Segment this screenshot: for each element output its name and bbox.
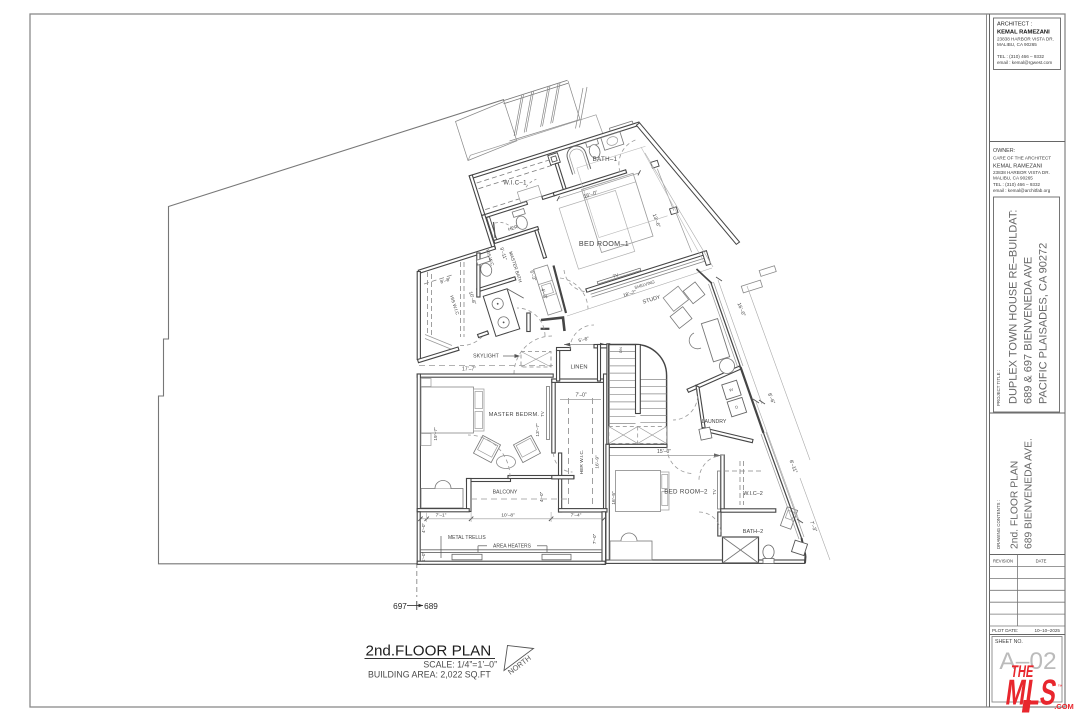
svg-text:BUILDING AREA: 2,022 SQ.FT: BUILDING AREA: 2,022 SQ.FT (368, 670, 491, 680)
svg-text:TEL : (310) 466 – 9332: TEL : (310) 466 – 9332 (997, 54, 1045, 59)
svg-text:10’–8”: 10’–8” (501, 513, 515, 519)
svg-text:.COM: .COM (1054, 702, 1074, 711)
svg-text:7’–1”: 7’–1” (436, 513, 447, 519)
svg-text:2nd. FLOOR PLAN: 2nd. FLOOR PLAN (1010, 461, 1021, 549)
svg-text:697: 697 (393, 602, 407, 611)
svg-text:4’–0”: 4’–0” (539, 491, 544, 502)
svg-text:DATE: DATE (1036, 559, 1047, 564)
svg-text:1’–0”: 1’–0” (421, 552, 426, 562)
svg-text:PROJECT TITLE :: PROJECT TITLE : (996, 370, 1001, 406)
svg-text:LAUNDRY: LAUNDRY (702, 419, 727, 425)
svg-text:MLS: MLS (1003, 672, 1059, 713)
svg-text:SHEET NO.: SHEET NO. (995, 639, 1023, 645)
svg-text:DRAWING CONTENTS :: DRAWING CONTENTS : (996, 500, 1001, 549)
svg-text:KEMAL RAMEZANI: KEMAL RAMEZANI (997, 30, 1050, 36)
svg-text:SCALE: 1/4”=1’–0”: SCALE: 1/4”=1’–0” (423, 660, 497, 670)
svg-text:W.I.C–1: W.I.C–1 (503, 181, 527, 187)
svg-text:2nd.FLOOR PLAN: 2nd.FLOOR PLAN (366, 643, 492, 660)
svg-text:MALIBU, CA 90265: MALIBU, CA 90265 (997, 42, 1037, 47)
svg-text:16’–9”: 16’–9” (595, 455, 601, 469)
svg-text:REVISION: REVISION (993, 559, 1013, 564)
svg-text:689: 689 (424, 602, 438, 611)
svg-text:PACIFIC PLAISADES, CA 90272: PACIFIC PLAISADES, CA 90272 (1038, 243, 1050, 404)
svg-text:17’–7”: 17’–7” (462, 367, 476, 373)
svg-text:AREA HEATERS: AREA HEATERS (493, 544, 532, 550)
svg-text:7’–0”: 7’–0” (575, 393, 586, 399)
svg-text:TV: TV (712, 489, 717, 495)
svg-text:BED ROOM–1: BED ROOM–1 (579, 239, 629, 248)
svg-text:TEL : (310) 466 – 9332: TEL : (310) 466 – 9332 (993, 182, 1041, 187)
svg-text:689 & 697 BIENVENEDA AVE: 689 & 697 BIENVENEDA AVE (1023, 257, 1035, 404)
svg-text:13’–7”: 13’–7” (535, 423, 541, 437)
svg-text:4’–0”: 4’–0” (421, 523, 426, 533)
svg-text:BED ROOM–2: BED ROOM–2 (664, 489, 708, 496)
svg-text:DN: DN (618, 347, 623, 353)
svg-text:HER W.I.C.: HER W.I.C. (579, 450, 585, 475)
svg-text:email : kemal@rgwest.com: email : kemal@rgwest.com (997, 60, 1052, 65)
svg-text:LINEN: LINEN (570, 365, 587, 371)
svg-text:15’–0”: 15’–0” (657, 449, 671, 455)
svg-text:CARE OF THE ARCHITECT: CARE OF THE ARCHITECT (993, 156, 1051, 161)
svg-text:METAL TRELLIS: METAL TRELLIS (448, 535, 486, 541)
svg-text:KEMAL RAMEZANI: KEMAL RAMEZANI (993, 164, 1043, 170)
svg-text:7’–4”: 7’–4” (571, 513, 582, 519)
svg-text:23838 HARBOR VISTA DR.: 23838 HARBOR VISTA DR. (993, 170, 1050, 175)
svg-text:OWNER:: OWNER: (993, 148, 1015, 154)
svg-text:BATH–2: BATH–2 (743, 529, 763, 535)
svg-text:email : kemal@architfab.org: email : kemal@architfab.org (993, 188, 1051, 193)
svg-text:SKYLIGHT: SKYLIGHT (473, 354, 499, 360)
svg-text:BATH–1: BATH–1 (593, 156, 618, 163)
svg-text:7’–0”: 7’–0” (592, 533, 597, 544)
svg-text:MASTER BEDRM.: MASTER BEDRM. (489, 412, 540, 418)
svg-text:MALIBU, CA 90265: MALIBU, CA 90265 (993, 176, 1033, 181)
svg-text:™: ™ (1058, 684, 1063, 690)
svg-text:TV: TV (540, 411, 545, 417)
svg-text:PLOT DATE:: PLOT DATE: (992, 628, 1018, 633)
svg-text:23838 HARBOR VISTA DR.: 23838 HARBOR VISTA DR. (997, 37, 1054, 42)
svg-text:19’–7”: 19’–7” (433, 427, 439, 441)
svg-text:BALCONY: BALCONY (493, 490, 518, 496)
svg-text:689 BIENVENEDA AVE.: 689 BIENVENEDA AVE. (1024, 438, 1035, 549)
svg-text:DUPLEX TOWN HOUSE RE–BUILDAT:: DUPLEX TOWN HOUSE RE–BUILDAT: (1008, 210, 1020, 404)
svg-text:ARCHITECT :: ARCHITECT : (997, 22, 1032, 28)
svg-text:10–10–2025: 10–10–2025 (1034, 628, 1060, 633)
svg-text:16’–5”: 16’–5” (611, 491, 617, 505)
svg-text:W.I.C–2: W.I.C–2 (743, 491, 763, 497)
